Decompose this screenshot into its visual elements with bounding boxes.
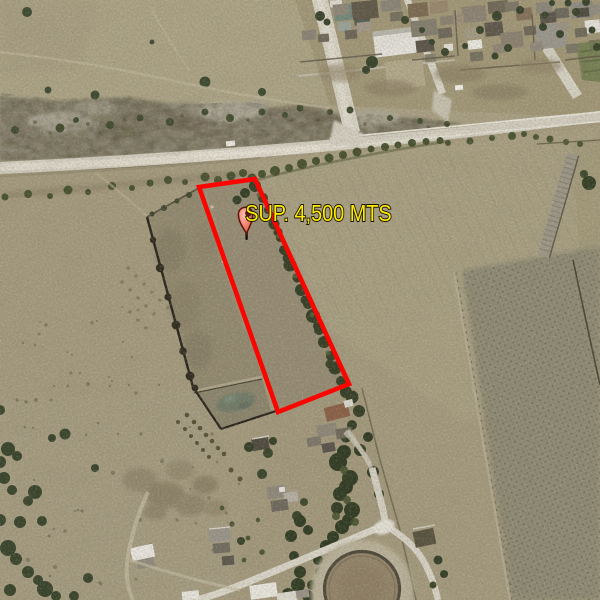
svg-text:SUP. 4,500 MTS: SUP. 4,500 MTS [245,200,392,226]
